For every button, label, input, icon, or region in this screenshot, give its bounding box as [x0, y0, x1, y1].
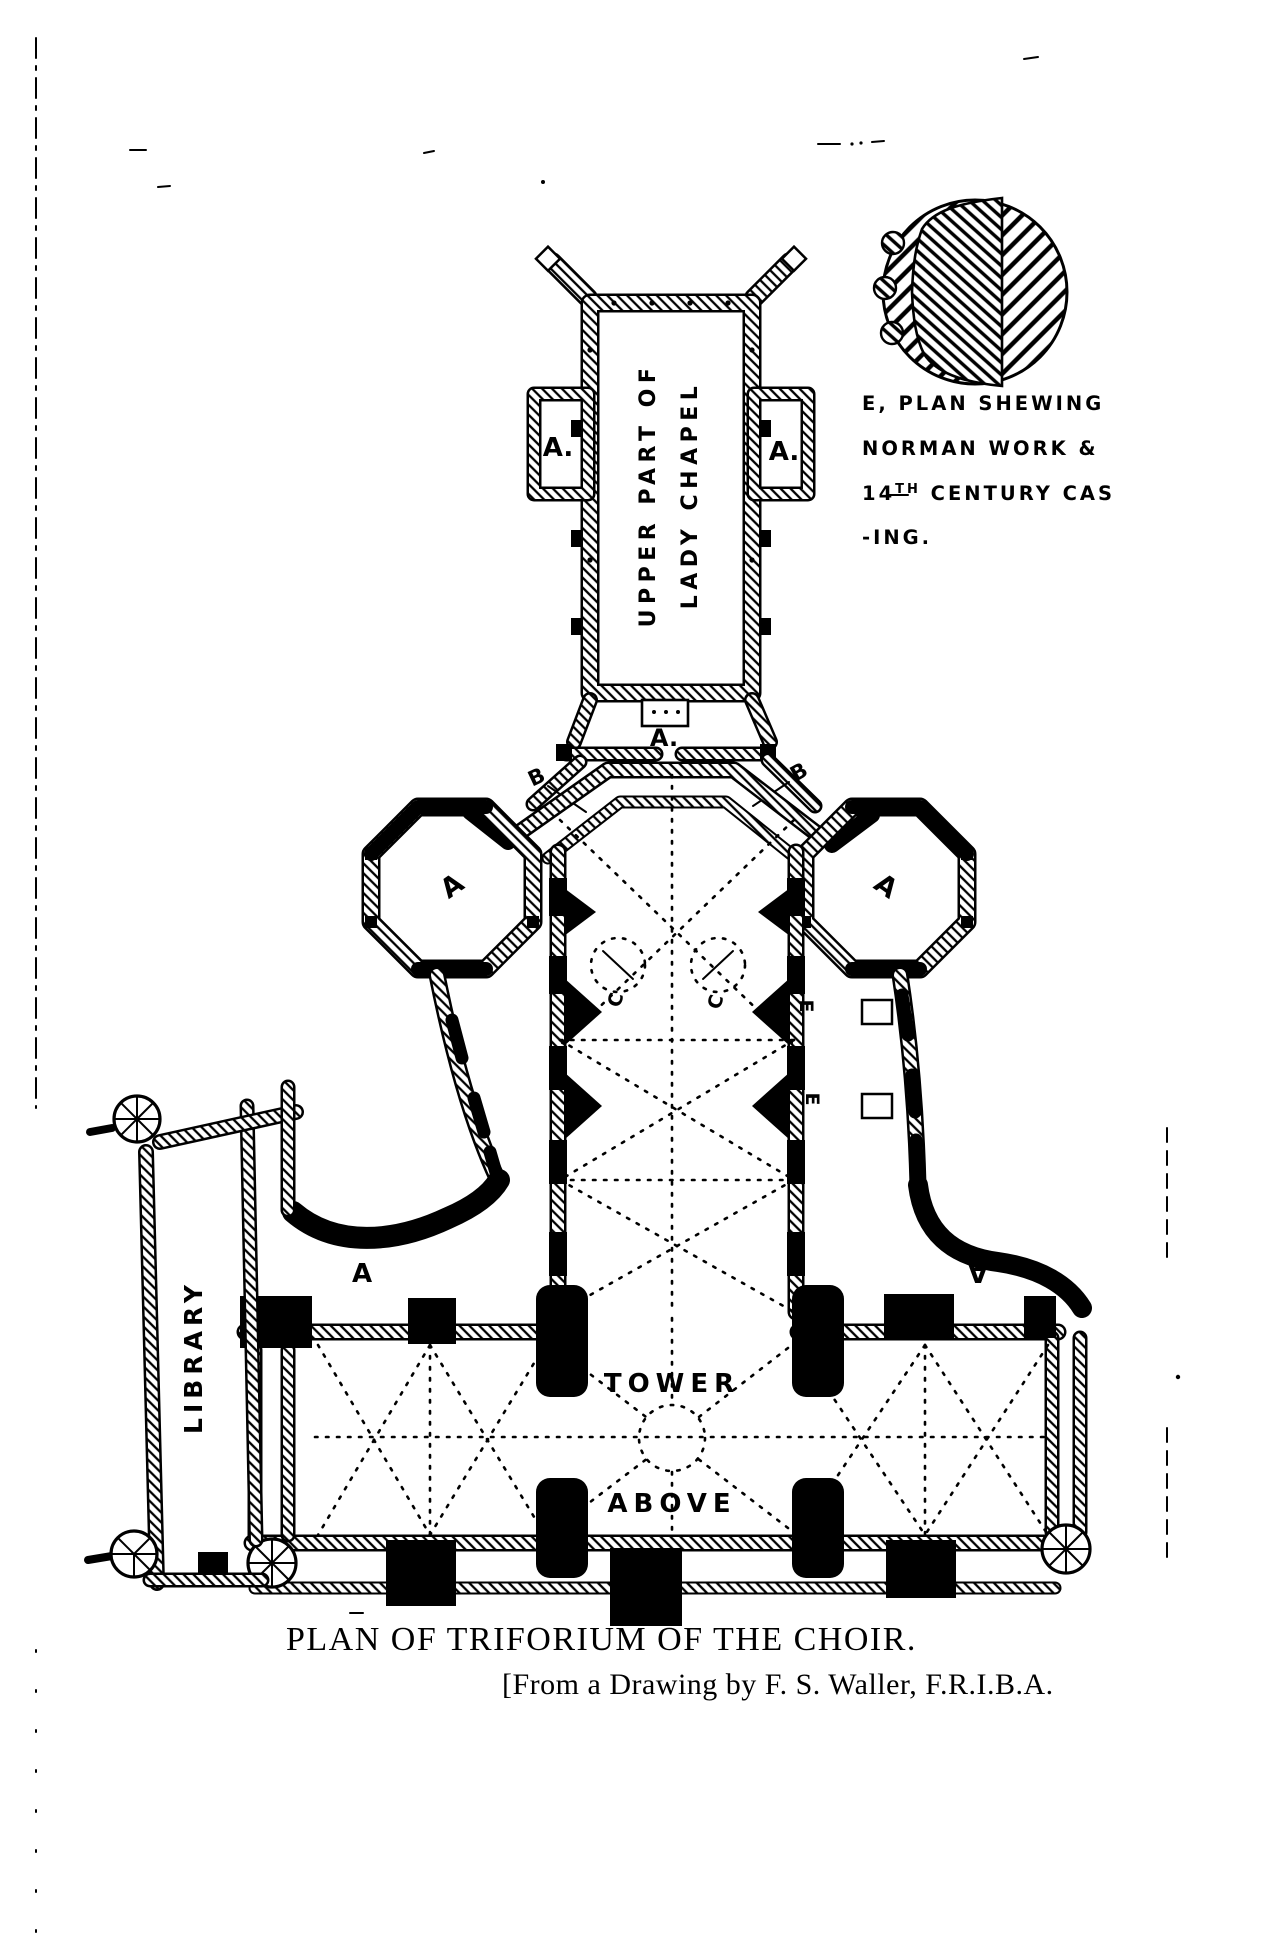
label-c-right: C: [704, 992, 729, 1011]
lady-chapel: A. A. UPPER PART OF LADY CHAPEL: [534, 247, 808, 693]
aisle-walls: [293, 975, 1082, 1308]
label-above: ABOVE: [607, 1489, 736, 1519]
legend-shaft-knob: [882, 232, 904, 254]
legend-line-3-number: 14: [862, 482, 895, 505]
legend-line-3-rest: CENTURY CAS: [921, 482, 1115, 505]
label-a-transept-right: A: [968, 1257, 988, 1287]
label-a-vestibule: A.: [650, 724, 678, 752]
label-tower: TOWER: [604, 1369, 740, 1399]
legend-shaft-knob: [874, 277, 896, 299]
caption-credit: [From a Drawing by F. S. Waller, F.R.I.B…: [502, 1668, 1054, 1701]
figure-caption: PLAN OF TRIFORIUM OF THE CHOIR. [From a …: [286, 1621, 1054, 1701]
choir-vault-lines: [560, 775, 794, 1312]
octagon-chapel-right: A: [799, 807, 973, 969]
transept-band: TOWER ABOVE A A: [198, 1257, 1090, 1626]
legend-caption: E, PLAN SHEWING NORMAN WORK & 14TH CENTU…: [862, 392, 1115, 549]
spiral-stair: [1042, 1525, 1090, 1573]
scanned-book-page: E, PLAN SHEWING NORMAN WORK & 14TH CENTU…: [0, 0, 1282, 1959]
label-a-side-chapel-right: A.: [769, 437, 799, 467]
triforium-plan-figure: E, PLAN SHEWING NORMAN WORK & 14TH CENTU…: [0, 0, 1282, 1959]
crossing-circle: [639, 1405, 705, 1471]
label-a-transept-left: A: [352, 1259, 372, 1289]
label-a-side-chapel-left: A.: [543, 433, 573, 463]
legend-diagram: [874, 198, 1067, 386]
label-lady-chapel-line2: LADY CHAPEL: [678, 381, 703, 610]
label-e-pier-lower: E: [801, 1093, 823, 1106]
label-lady-chapel-line1: UPPER PART OF: [636, 363, 661, 628]
spiral-stair: [114, 1096, 160, 1142]
label-a-octagon-right: A: [868, 868, 903, 905]
choir: C C E E: [549, 775, 823, 1312]
spiral-stair: [111, 1531, 157, 1577]
label-e-pier-upper: E: [795, 1000, 817, 1013]
curved-wall-left: [293, 1180, 499, 1238]
label-library: LIBRARY: [179, 1280, 208, 1434]
legend-line-2: NORMAN WORK &: [862, 437, 1099, 460]
legend-norman-work-shape: [912, 198, 1002, 386]
octagon-chapel-left: A: [365, 807, 539, 969]
label-a-octagon-left: A: [435, 868, 470, 905]
caption-title: PLAN OF TRIFORIUM OF THE CHOIR.: [286, 1621, 917, 1658]
legend-line-3: 14TH CENTURY CAS: [862, 482, 1115, 505]
legend-line-4: -ING.: [862, 526, 932, 549]
legend-line-1: E, PLAN SHEWING: [862, 392, 1104, 415]
legend-shaft-knob: [881, 322, 903, 344]
label-c-left: C: [604, 990, 629, 1009]
curved-wall-right: [918, 1185, 1082, 1308]
